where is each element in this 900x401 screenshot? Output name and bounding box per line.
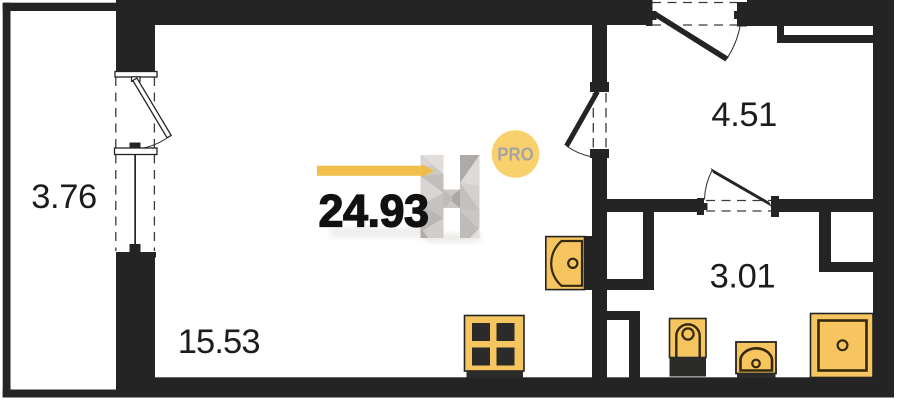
svg-text:3.01: 3.01 [710,258,776,296]
svg-text:4.51: 4.51 [711,96,777,134]
svg-text:3.76: 3.76 [31,178,97,216]
svg-text:15.53: 15.53 [178,323,260,361]
svg-text:24.93: 24.93 [318,186,428,237]
svg-text:PRO: PRO [497,144,534,164]
